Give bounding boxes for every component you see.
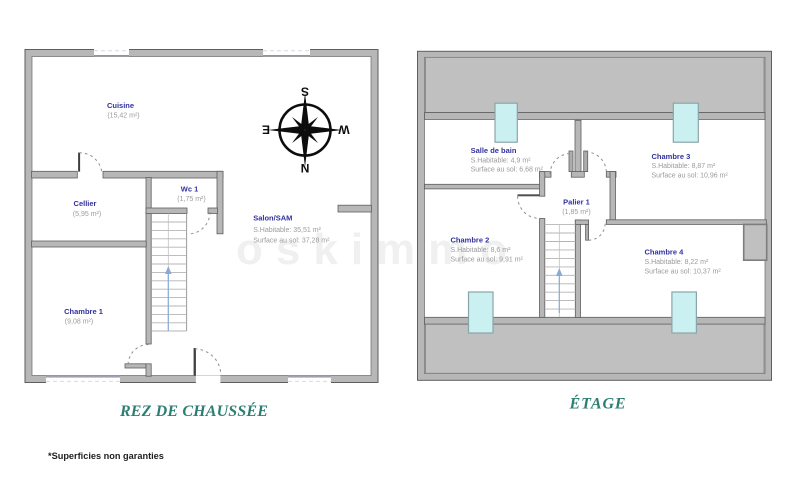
svg-text:W: W [338, 123, 350, 137]
svg-text:Wc 1: Wc 1 [181, 185, 199, 194]
svg-text:S.Habitable: 4,9 m²: S.Habitable: 4,9 m² [471, 157, 532, 164]
svg-text:Palier 1: Palier 1 [563, 197, 590, 206]
svg-text:Surface au sol: 10,96 m²: Surface au sol: 10,96 m² [652, 173, 729, 180]
svg-text:Cellier: Cellier [74, 199, 97, 208]
svg-text:S.Habitable: 8,6 m²: S.Habitable: 8,6 m² [451, 247, 512, 254]
svg-text:Surface au sol: 37,28 m²: Surface au sol: 37,28 m² [253, 237, 330, 244]
svg-text:(5,95 m²): (5,95 m²) [73, 211, 101, 218]
svg-text:N: N [301, 161, 310, 175]
svg-text:Salon/SAM: Salon/SAM [253, 214, 292, 223]
svg-text:(15,42 m²): (15,42 m²) [107, 112, 139, 119]
svg-text:Chambre 3: Chambre 3 [652, 152, 691, 161]
svg-text:Surface au sol: 9,91 m²: Surface au sol: 9,91 m² [451, 257, 524, 264]
svg-text:*Superficies non garanties: *Superficies non garanties [48, 451, 164, 461]
svg-text:REZ DE CHAUSSÉE: REZ DE CHAUSSÉE [119, 401, 268, 420]
svg-text:E: E [262, 123, 270, 137]
svg-text:S.Habitable: 35,51 m²: S.Habitable: 35,51 m² [253, 227, 321, 234]
svg-text:(9,08 m²): (9,08 m²) [65, 319, 93, 326]
svg-text:(1,75 m²): (1,75 m²) [177, 196, 205, 203]
svg-text:Chambre 2: Chambre 2 [451, 236, 490, 245]
svg-text:(1,85 m²): (1,85 m²) [562, 209, 590, 216]
svg-text:Cuisine: Cuisine [107, 101, 134, 110]
svg-text:S.Habitable: 8,87 m²: S.Habitable: 8,87 m² [652, 163, 716, 170]
svg-text:Chambre 1: Chambre 1 [64, 307, 103, 316]
svg-text:Chambre 4: Chambre 4 [645, 247, 685, 256]
svg-text:Surface au sol: 6,68 m²: Surface au sol: 6,68 m² [471, 166, 544, 173]
svg-text:S.Habitable: 8,22 m²: S.Habitable: 8,22 m² [645, 259, 709, 266]
svg-text:Surface au sol: 10,37 m²: Surface au sol: 10,37 m² [645, 268, 722, 275]
svg-text:ÉTAGE: ÉTAGE [569, 394, 627, 413]
svg-text:S: S [301, 85, 309, 99]
svg-text:Salle de bain: Salle de bain [471, 146, 517, 155]
